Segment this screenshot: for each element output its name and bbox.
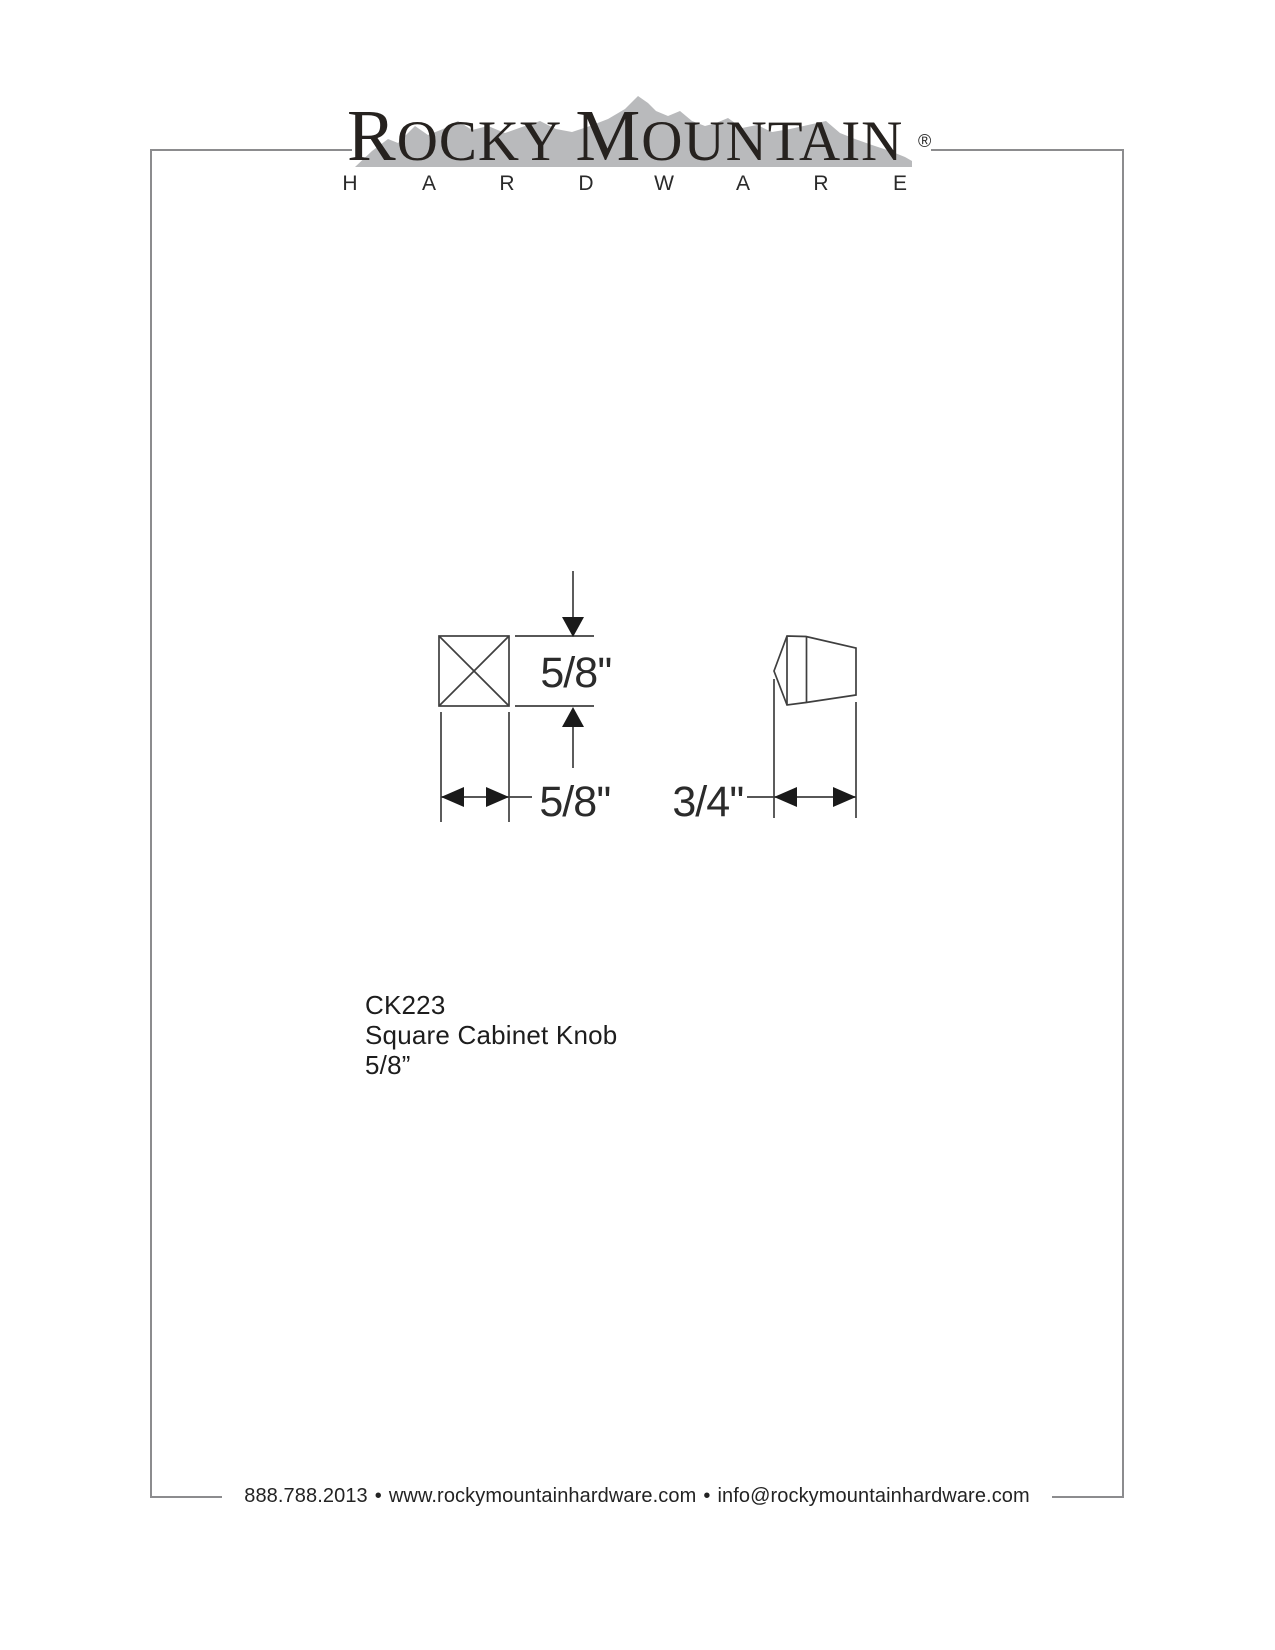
product-sku: CK223 [365,990,617,1020]
height-dimension-label: 5/8'' [540,649,611,697]
subtitle-letter: R [499,172,514,195]
product-name: Square Cabinet Knob [365,1020,617,1050]
arrow-up-icon [562,707,584,727]
wordmark-initial-m: M [575,95,641,176]
product-info: CK223 Square Cabinet Knob 5/8” [365,990,617,1080]
arrow-right-icon [833,787,856,807]
arrow-right-icon [486,787,509,807]
footer-phone: 888.788.2013 [244,1485,368,1507]
subtitle-letter: A [422,172,436,195]
footer-separator: • [375,1485,382,1507]
subtitle-letter: A [736,172,750,195]
registered-trademark-icon: ® [918,131,931,151]
wordmark-initial-r: R [347,95,397,176]
brand-wordmark: ROCKY MOUNTAIN [347,95,903,176]
footer-contact-line: 888.788.2013•www.rockymountainhardware.c… [150,1485,1124,1508]
projection-dimension-label: 3/4'' [672,778,743,826]
footer-website: www.rockymountainhardware.com [389,1485,696,1507]
spec-sheet-page: ROCKY MOUNTAIN ® H A R D W A R E 5/8 [0,0,1275,1650]
product-size: 5/8” [365,1050,617,1080]
technical-drawing: 5/8'' 5/8'' 3/4'' [439,571,856,826]
arrow-down-icon [562,617,584,637]
subtitle-letter: R [813,172,828,195]
wordmark-ocky: OCKY [397,110,576,173]
logo-and-drawing-layer: ROCKY MOUNTAIN ® H A R D W A R E 5/8 [0,0,1275,1650]
footer-email: info@rockymountainhardware.com [717,1485,1029,1507]
arrow-left-icon [441,787,464,807]
arrow-left-icon [774,787,797,807]
wordmark-ountain: OUNTAIN [641,110,903,173]
subtitle-letter: H [342,172,357,195]
subtitle-letter: E [893,172,907,195]
footer-separator: • [703,1485,710,1507]
width-dimension-label: 5/8'' [539,778,610,826]
subtitle-letter: D [578,172,593,195]
subtitle-letter: W [654,172,674,195]
